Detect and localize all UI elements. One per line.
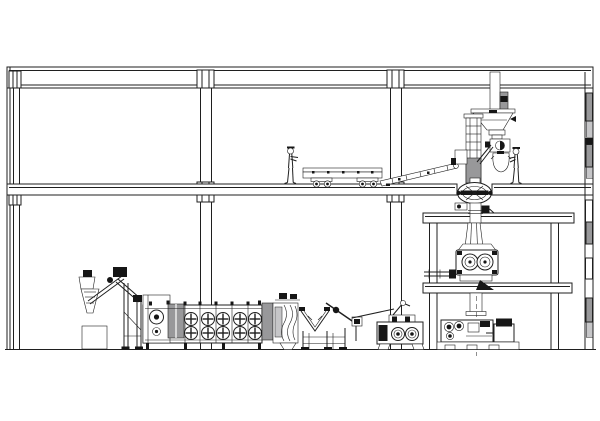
left-wall-column <box>7 67 21 349</box>
twin-roll-machine <box>352 300 424 349</box>
dryer-feet <box>146 343 261 349</box>
roof-feed-pipe <box>490 72 508 110</box>
feeder-cup <box>79 277 95 289</box>
feeder-frame <box>122 283 144 350</box>
belt-dryer <box>143 295 273 349</box>
elevation-drawing <box>0 0 600 421</box>
bag-filler <box>491 151 511 172</box>
drawing-canvas <box>0 0 600 421</box>
screen-frame <box>301 328 347 350</box>
operator-at-bag-filler <box>508 147 522 184</box>
rotary-valve <box>485 130 510 152</box>
floor-box <box>82 326 107 349</box>
right-wall <box>585 67 593 349</box>
feeder-v-hopper <box>81 289 99 313</box>
mezzanine-floor <box>7 184 593 195</box>
dryer-hatch-right <box>262 303 273 340</box>
mid-column-b <box>387 70 404 349</box>
feeder-motor <box>113 267 127 277</box>
machine-base <box>437 342 519 350</box>
roof-slab <box>7 67 593 88</box>
dryer-discharge-chute <box>273 293 300 350</box>
screen-feed-arm <box>326 303 362 341</box>
feed-hopper-elevator <box>79 267 143 350</box>
operator-on-mezzanine <box>285 147 299 184</box>
lower-service-platform <box>423 283 572 293</box>
vibrating-screen <box>299 303 362 350</box>
upper-service-platform <box>423 213 574 223</box>
crumbler <box>441 320 493 342</box>
ground-floor-equipment <box>79 267 424 350</box>
twin-roll-motor <box>379 325 388 341</box>
pellet-mill <box>424 223 498 316</box>
inclined-conveyor <box>380 164 458 187</box>
mezzanine-equipment <box>285 147 522 188</box>
